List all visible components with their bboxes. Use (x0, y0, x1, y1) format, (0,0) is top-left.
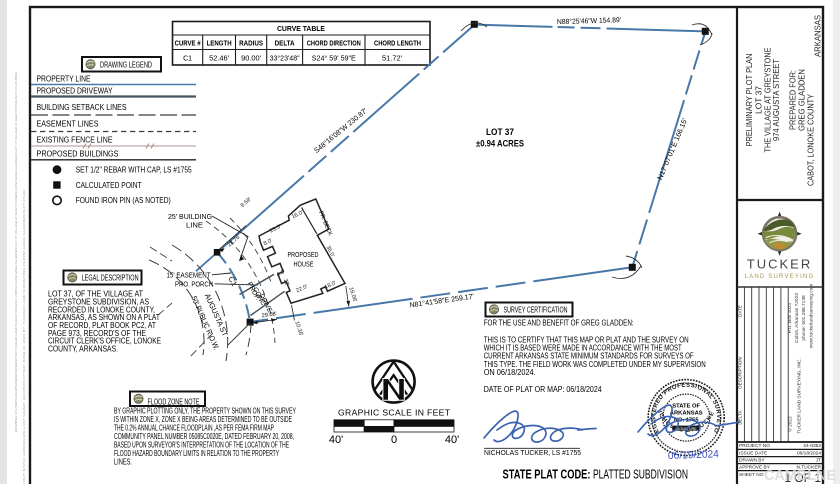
svg-text:PROJECT NO: PROJECT NO (739, 443, 770, 449)
svg-text:RADIUS: RADIUS (239, 41, 263, 48)
svg-text:PROPERTY LINE: PROPERTY LINE (37, 75, 91, 84)
svg-text:CHORD DIRECTION: CHORD DIRECTION (307, 41, 361, 48)
svg-text:FLOOD ZONE NOTE: FLOOD ZONE NOTE (148, 397, 200, 406)
svg-text:DRAWING: C:\USERS\JACOB\ONEDRI: DRAWING: C:\USERS\JACOB\ONEDRIVE\DESKTOP… (14, 71, 18, 432)
svg-text:CURVE #: CURVE # (175, 41, 201, 48)
svg-text:90.00': 90.00' (241, 54, 262, 63)
svg-text:EASEMENT LINES: EASEMENT LINES (37, 120, 99, 129)
svg-text:06/19/2024: 06/19/2024 (668, 448, 720, 462)
svg-text:© 2022: © 2022 (787, 416, 794, 432)
svg-text:SHEET NO: SHEET NO (739, 472, 764, 478)
svg-text:LAND SURVEYING: LAND SURVEYING (745, 274, 815, 280)
svg-text:DELTA: DELTA (275, 41, 295, 48)
svg-text:06/18/2024: 06/18/2024 (797, 451, 821, 457)
svg-text:TUCKER LAND SURVEYING, INC.: TUCKER LAND SURVEYING, INC. (797, 358, 803, 434)
svg-text:P.O. Box 1021: P.O. Box 1021 (787, 302, 793, 333)
svg-text:DESCRIPTION: DESCRIPTION (738, 357, 743, 388)
svg-text:CURVE TABLE: CURVE TABLE (277, 24, 325, 33)
svg-text:PRO. PORCH: PRO. PORCH (175, 280, 213, 289)
svg-text:LINES.: LINES. (114, 457, 132, 466)
svg-text:FLOOD HAZARD BOUNDARY LIMITS I: FLOOD HAZARD BOUNDARY LIMITS IN RELATION… (114, 449, 279, 458)
svg-text:40': 40' (445, 434, 459, 446)
svg-text:ARKANSAS: ARKANSAS (813, 15, 823, 57)
svg-text:CABOT, LONOKE COUNTY: CABOT, LONOKE COUNTY (806, 94, 816, 186)
svg-text:PRELIMINARY PLOT PLAN: PRELIMINARY PLOT PLAN (744, 54, 754, 147)
svg-text:PROPOSED DRIVEWAY: PROPOSED DRIVEWAY (37, 87, 114, 96)
svg-text:±0.94 ACRES: ±0.94 ACRES (476, 139, 524, 150)
svg-text:N88°25'46"W 154.89': N88°25'46"W 154.89' (557, 15, 622, 26)
svg-text:PROPOSED: PROPOSED (288, 250, 319, 259)
svg-text:SURVEY CERTIFICATION: SURVEY CERTIFICATION (504, 305, 568, 314)
svg-text:phone: 501.288.7138: phone: 501.288.7138 (801, 295, 807, 341)
svg-text:S24° 59' 59"E: S24° 59' 59"E (312, 54, 356, 63)
svg-text:TUCKER: TUCKER (747, 257, 812, 272)
svg-text:974 AUGUSTA STREET: 974 AUGUSTA STREET (771, 58, 781, 141)
svg-text:LENGTH: LENGTH (207, 41, 232, 48)
svg-text:52.46': 52.46' (209, 54, 230, 63)
svg-text:FOR THE USE AND BENEFIT OF GRE: FOR THE USE AND BENEFIT OF GREG GLADDEN: (484, 318, 634, 327)
svg-text:FOUND IRON PIN (AS NOTED): FOUND IRON PIN (AS NOTED) (76, 196, 171, 205)
svg-text:DELTA: DELTA (738, 410, 743, 425)
svg-text:PLATTED SUBDIVISION: PLATTED SUBDIVISION (593, 467, 688, 482)
svg-text:ON 06/18/2024.: ON 06/18/2024. (484, 368, 536, 377)
svg-text:SET 1/2" REBAR WITH CAP, LS #1: SET 1/2" REBAR WITH CAP, LS #1755 (76, 166, 193, 175)
svg-text:CAMBLNE: CAMBLNE (764, 467, 836, 484)
svg-text:DRAWN BY: DRAWN BY (739, 458, 765, 464)
svg-text:JT: JT (816, 458, 821, 464)
svg-text:HOUSE: HOUSE (294, 260, 314, 269)
svg-text:ISSUE DATE: ISSUE DATE (739, 451, 767, 457)
svg-text:40': 40' (329, 434, 343, 446)
svg-text:DRAWING LEGEND: DRAWING LEGEND (100, 60, 152, 69)
svg-text:NICHOLAS TUCKER, LS #1755: NICHOLAS TUCKER, LS #1755 (484, 448, 581, 457)
svg-text:STATE PLAT CODE:: STATE PLAT CODE: (503, 467, 591, 482)
svg-text:CALCULATED POINT: CALCULATED POINT (76, 181, 142, 190)
svg-text:LEGAL DESCRIPTION: LEGAL DESCRIPTION (82, 273, 139, 282)
svg-text:51.72': 51.72' (382, 54, 403, 63)
svg-text:33°23'48": 33°23'48" (270, 54, 300, 63)
svg-text:DATE OF PLAT OR MAP: 06/18/202: DATE OF PLAT OR MAP: 06/18/2024 (484, 385, 603, 394)
svg-text:CHORD LENGTH: CHORD LENGTH (374, 41, 421, 48)
svg-text:LAYOUT: 8.5X14 LANDSCAPE LAS: LAYOUT: 8.5X14 LANDSCAPE LAST SAVED: JAC… (22, 190, 26, 484)
svg-text:LOT 37: LOT 37 (486, 127, 514, 138)
svg-text:24-0352: 24-0352 (803, 443, 821, 449)
svg-text:15' EASEMENT: 15' EASEMENT (167, 271, 212, 280)
svg-text:BUILDING SETBACK LINES: BUILDING SETBACK LINES (37, 103, 127, 112)
svg-text:GRAPHIC SCALE IN FEET: GRAPHIC SCALE IN FEET (338, 408, 451, 418)
svg-text:LINE: LINE (186, 221, 203, 230)
svg-text:Cabot, Arkansas 72023: Cabot, Arkansas 72023 (794, 293, 800, 343)
svg-text:COUNTY, ARKANSAS.: COUNTY, ARKANSAS. (48, 345, 118, 354)
svg-text:C1: C1 (183, 54, 192, 63)
svg-text:www.tuckerlandsurveying.com: www.tuckerlandsurveying.com (809, 284, 815, 349)
svg-text:DATE: DATE (738, 305, 743, 317)
svg-text:EXISTING FENCE LINE: EXISTING FENCE LINE (37, 135, 113, 144)
svg-text:PROPOSED BUILDINGS: PROPOSED BUILDINGS (37, 150, 119, 159)
svg-text:ARKANSAS: ARKANSAS (670, 411, 703, 417)
svg-text:0: 0 (391, 434, 397, 446)
svg-text:STATE OF: STATE OF (672, 404, 700, 410)
